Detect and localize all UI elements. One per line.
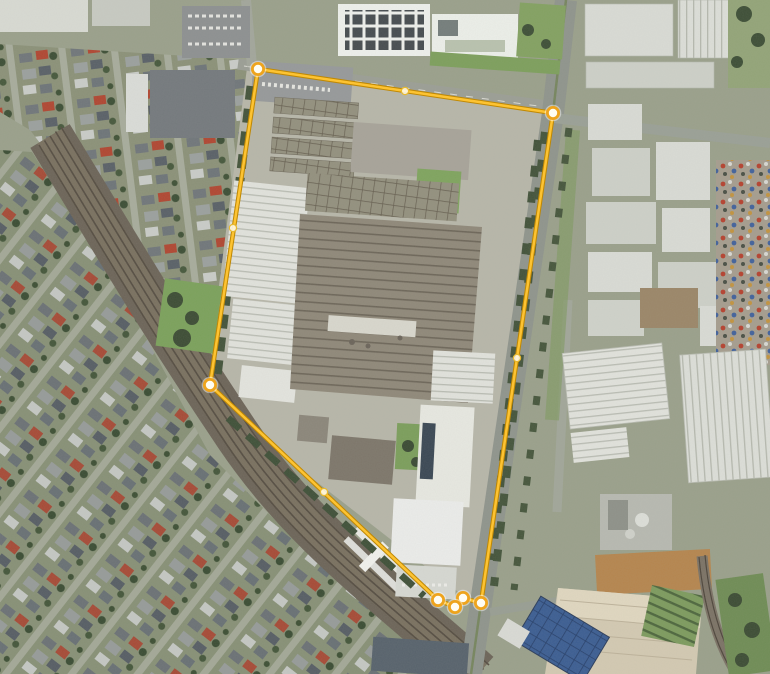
satellite-map (0, 0, 770, 674)
polygon-midpoint-handle[interactable] (229, 224, 236, 231)
polygon-vertex-handle[interactable] (449, 601, 460, 612)
polygon-midpoint-handle[interactable] (401, 87, 408, 94)
polygon-midpoint-handle[interactable] (320, 488, 327, 495)
polygon-vertex-handle[interactable] (252, 63, 263, 74)
polygon-vertex-handle[interactable] (547, 107, 558, 118)
imagery-grain (0, 0, 770, 674)
polygon-vertex-handle[interactable] (204, 379, 215, 390)
map-viewport[interactable] (0, 0, 770, 674)
polygon-vertex-handle[interactable] (432, 594, 443, 605)
polygon-vertex-handle[interactable] (475, 597, 486, 608)
polygon-midpoint-handle[interactable] (513, 354, 520, 361)
